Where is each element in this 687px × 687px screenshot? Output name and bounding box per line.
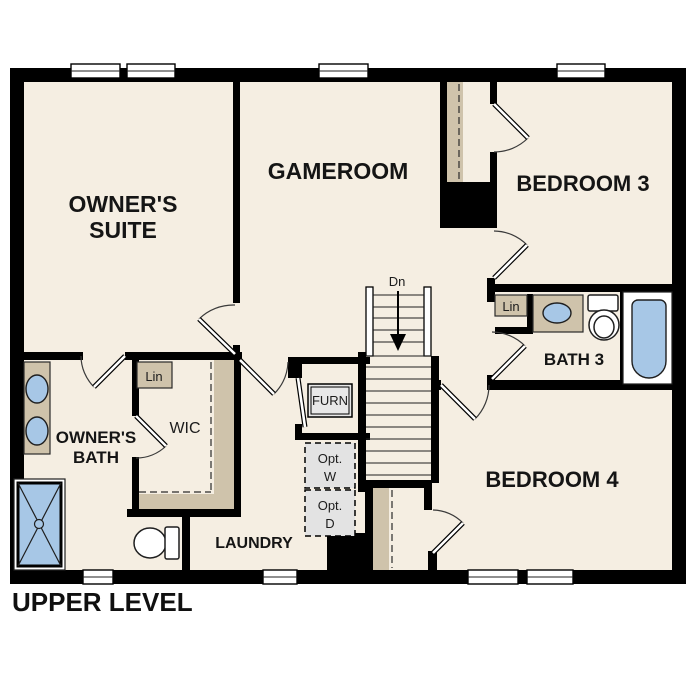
stair-rail-right: [424, 287, 431, 356]
owners-bath-shower: [14, 479, 65, 570]
wic-shelf-right: [214, 360, 234, 509]
laundry-label: LAUNDRY: [215, 535, 293, 552]
window: [263, 570, 297, 584]
wic-label: WIC: [169, 420, 200, 437]
floor-plan-svg: OWNER'S SUITE GAMEROOM BEDROOM 3 BATH 3 …: [0, 0, 687, 687]
plan-title: UPPER LEVEL: [12, 587, 193, 617]
chase-box-upper: [440, 182, 497, 228]
window: [83, 570, 113, 584]
bedroom3-label: BEDROOM 3: [516, 171, 649, 196]
furnace-label: FURN: [312, 393, 348, 408]
owners-bath-label-1: OWNER'S: [56, 428, 137, 447]
owners-suite-label-2: SUITE: [89, 217, 157, 243]
window: [557, 64, 605, 78]
bath3-label: BATH 3: [544, 350, 604, 369]
window: [468, 570, 518, 584]
bath3-linen-label: Lin: [502, 299, 519, 314]
owners-bath-label-2: BATH: [73, 448, 119, 467]
chase-box-laundry: [327, 533, 366, 570]
owners-suite-label-1: OWNER'S: [69, 191, 178, 217]
window: [127, 64, 175, 78]
bath3-sink: [543, 303, 571, 323]
gameroom-label: GAMEROOM: [268, 158, 409, 184]
window: [319, 64, 368, 78]
optional-washer-label-2: W: [324, 469, 337, 484]
owners-bath-toilet: [134, 527, 179, 559]
owners-bath-sink-1: [26, 375, 48, 403]
stair-rail-left: [366, 287, 373, 356]
understair-shelf: [373, 488, 389, 570]
wic-shelf-bottom: [139, 494, 215, 509]
window: [71, 64, 120, 78]
wic-linen-label: Lin: [145, 369, 162, 384]
bath3-tub: [623, 292, 672, 384]
owners-bath-sink-2: [26, 417, 48, 445]
shower-drain: [35, 520, 44, 529]
optional-washer-label-1: Opt.: [318, 451, 343, 466]
window: [527, 570, 573, 584]
optional-dryer-label-2: D: [325, 516, 334, 531]
floor-plan: OWNER'S SUITE GAMEROOM BEDROOM 3 BATH 3 …: [0, 0, 687, 687]
bath3-toilet: [588, 295, 619, 340]
stairs-down-label: Dn: [389, 274, 406, 289]
optional-dryer-label-1: Opt.: [318, 498, 343, 513]
exterior-wall-right: [672, 68, 686, 584]
bedroom3-closet-shelf: [447, 82, 463, 182]
bedroom4-label: BEDROOM 4: [485, 467, 619, 492]
